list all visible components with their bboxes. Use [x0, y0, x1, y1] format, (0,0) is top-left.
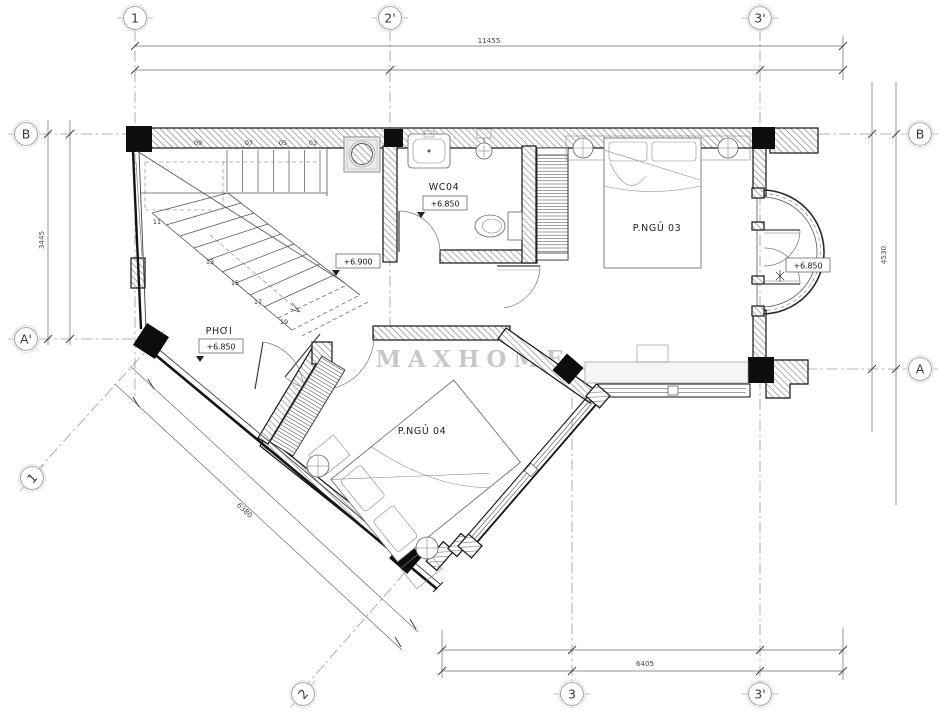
svg-text:05: 05 — [279, 139, 287, 147]
lamp-icon — [718, 138, 738, 158]
floor-plan-drawing: 11455 3445 4530 6405 — [0, 0, 949, 720]
dim-right-height: 4530 — [879, 245, 888, 264]
door-bedroom3 — [497, 266, 540, 308]
washing-machine-icon — [344, 137, 380, 172]
stair-step-numbers: 09 07 05 03 11 13 15 17 19 — [153, 139, 317, 326]
svg-text:13: 13 — [206, 258, 214, 266]
door-wc04 — [399, 211, 440, 252]
hall-level: +6.900 — [344, 258, 373, 267]
axis-bubble-diag-1: 1 — [10, 456, 54, 501]
svg-text:19: 19 — [280, 318, 288, 326]
axis-bubble-bottom-2: 2 — [281, 672, 325, 717]
svg-text:B: B — [916, 127, 925, 142]
level-marker-icon — [196, 356, 204, 362]
lamp-icon — [573, 138, 593, 158]
bedroom3-furniture — [566, 136, 750, 383]
column-grid3p-B — [752, 127, 775, 149]
axis-bubble-left-Ap: A' — [8, 326, 44, 353]
label-phoi: PHƠI — [206, 326, 233, 337]
svg-text:07: 07 — [245, 139, 253, 147]
balcony-door — [764, 230, 800, 284]
balcony: +6.850 — [752, 188, 830, 316]
wardrobe-bedroom3 — [537, 148, 568, 260]
floor-plan-page: 11455 3445 4530 6405 — [0, 0, 949, 720]
svg-text:03: 03 — [309, 139, 317, 147]
svg-text:15: 15 — [231, 279, 239, 287]
axis-bubble-top-3p: 3' — [742, 5, 778, 32]
dim-diagonal: 6380 — [235, 501, 255, 520]
label-bedroom4: P.NGỦ 04 — [398, 425, 447, 437]
axis-bubble-right-B: B — [902, 121, 938, 148]
dim-total-width: 11455 — [478, 36, 501, 45]
svg-text:3: 3 — [568, 687, 576, 702]
level-marker-icon — [417, 212, 425, 218]
svg-text:3': 3' — [754, 11, 765, 26]
bed-bedroom3 — [604, 138, 701, 268]
desk-bedroom3 — [585, 362, 748, 383]
bed-bedroom4 — [331, 380, 520, 562]
level-marker-icon — [776, 270, 784, 282]
lamp-icon — [307, 455, 329, 477]
column-grid1-B — [126, 126, 152, 152]
dim-bottom-width: 6405 — [636, 659, 654, 668]
svg-text:A': A' — [20, 332, 32, 347]
desk-chair — [637, 345, 668, 362]
wc04-level: +6.850 — [431, 200, 460, 209]
balcony-level: +6.850 — [794, 262, 823, 271]
phoi-level: +6.850 — [207, 343, 236, 352]
axis-bubble-bottom-3p: 3' — [742, 681, 778, 708]
label-wc04: WC04 — [429, 182, 460, 193]
column-grid2p — [384, 129, 403, 147]
svg-text:09: 09 — [194, 139, 202, 147]
svg-text:2': 2' — [384, 11, 395, 26]
bedroom4-furniture — [307, 354, 541, 588]
svg-text:3': 3' — [754, 687, 765, 702]
svg-text:1: 1 — [131, 11, 139, 26]
axis-bubble-bottom-3: 3 — [554, 681, 590, 708]
toilet-icon — [475, 212, 522, 240]
svg-text:B: B — [22, 127, 31, 142]
svg-text:11: 11 — [153, 218, 161, 226]
axis-bubble-right-A: A — [902, 356, 938, 383]
svg-text:17: 17 — [254, 298, 262, 306]
column-grid3p-A — [748, 357, 774, 383]
axis-bubble-left-B: B — [8, 121, 44, 148]
staircase: 09 07 05 03 11 13 15 17 19 — [137, 139, 368, 336]
sink-icon — [408, 131, 450, 168]
axis-bubble-top-1: 1 — [117, 5, 153, 32]
label-bedroom3: P.NGỦ 03 — [633, 222, 682, 234]
svg-text:A: A — [916, 362, 925, 377]
axis-bubble-top-2p: 2' — [372, 5, 408, 32]
lamp-icon — [416, 537, 438, 559]
dim-left-height: 3445 — [37, 231, 46, 249]
